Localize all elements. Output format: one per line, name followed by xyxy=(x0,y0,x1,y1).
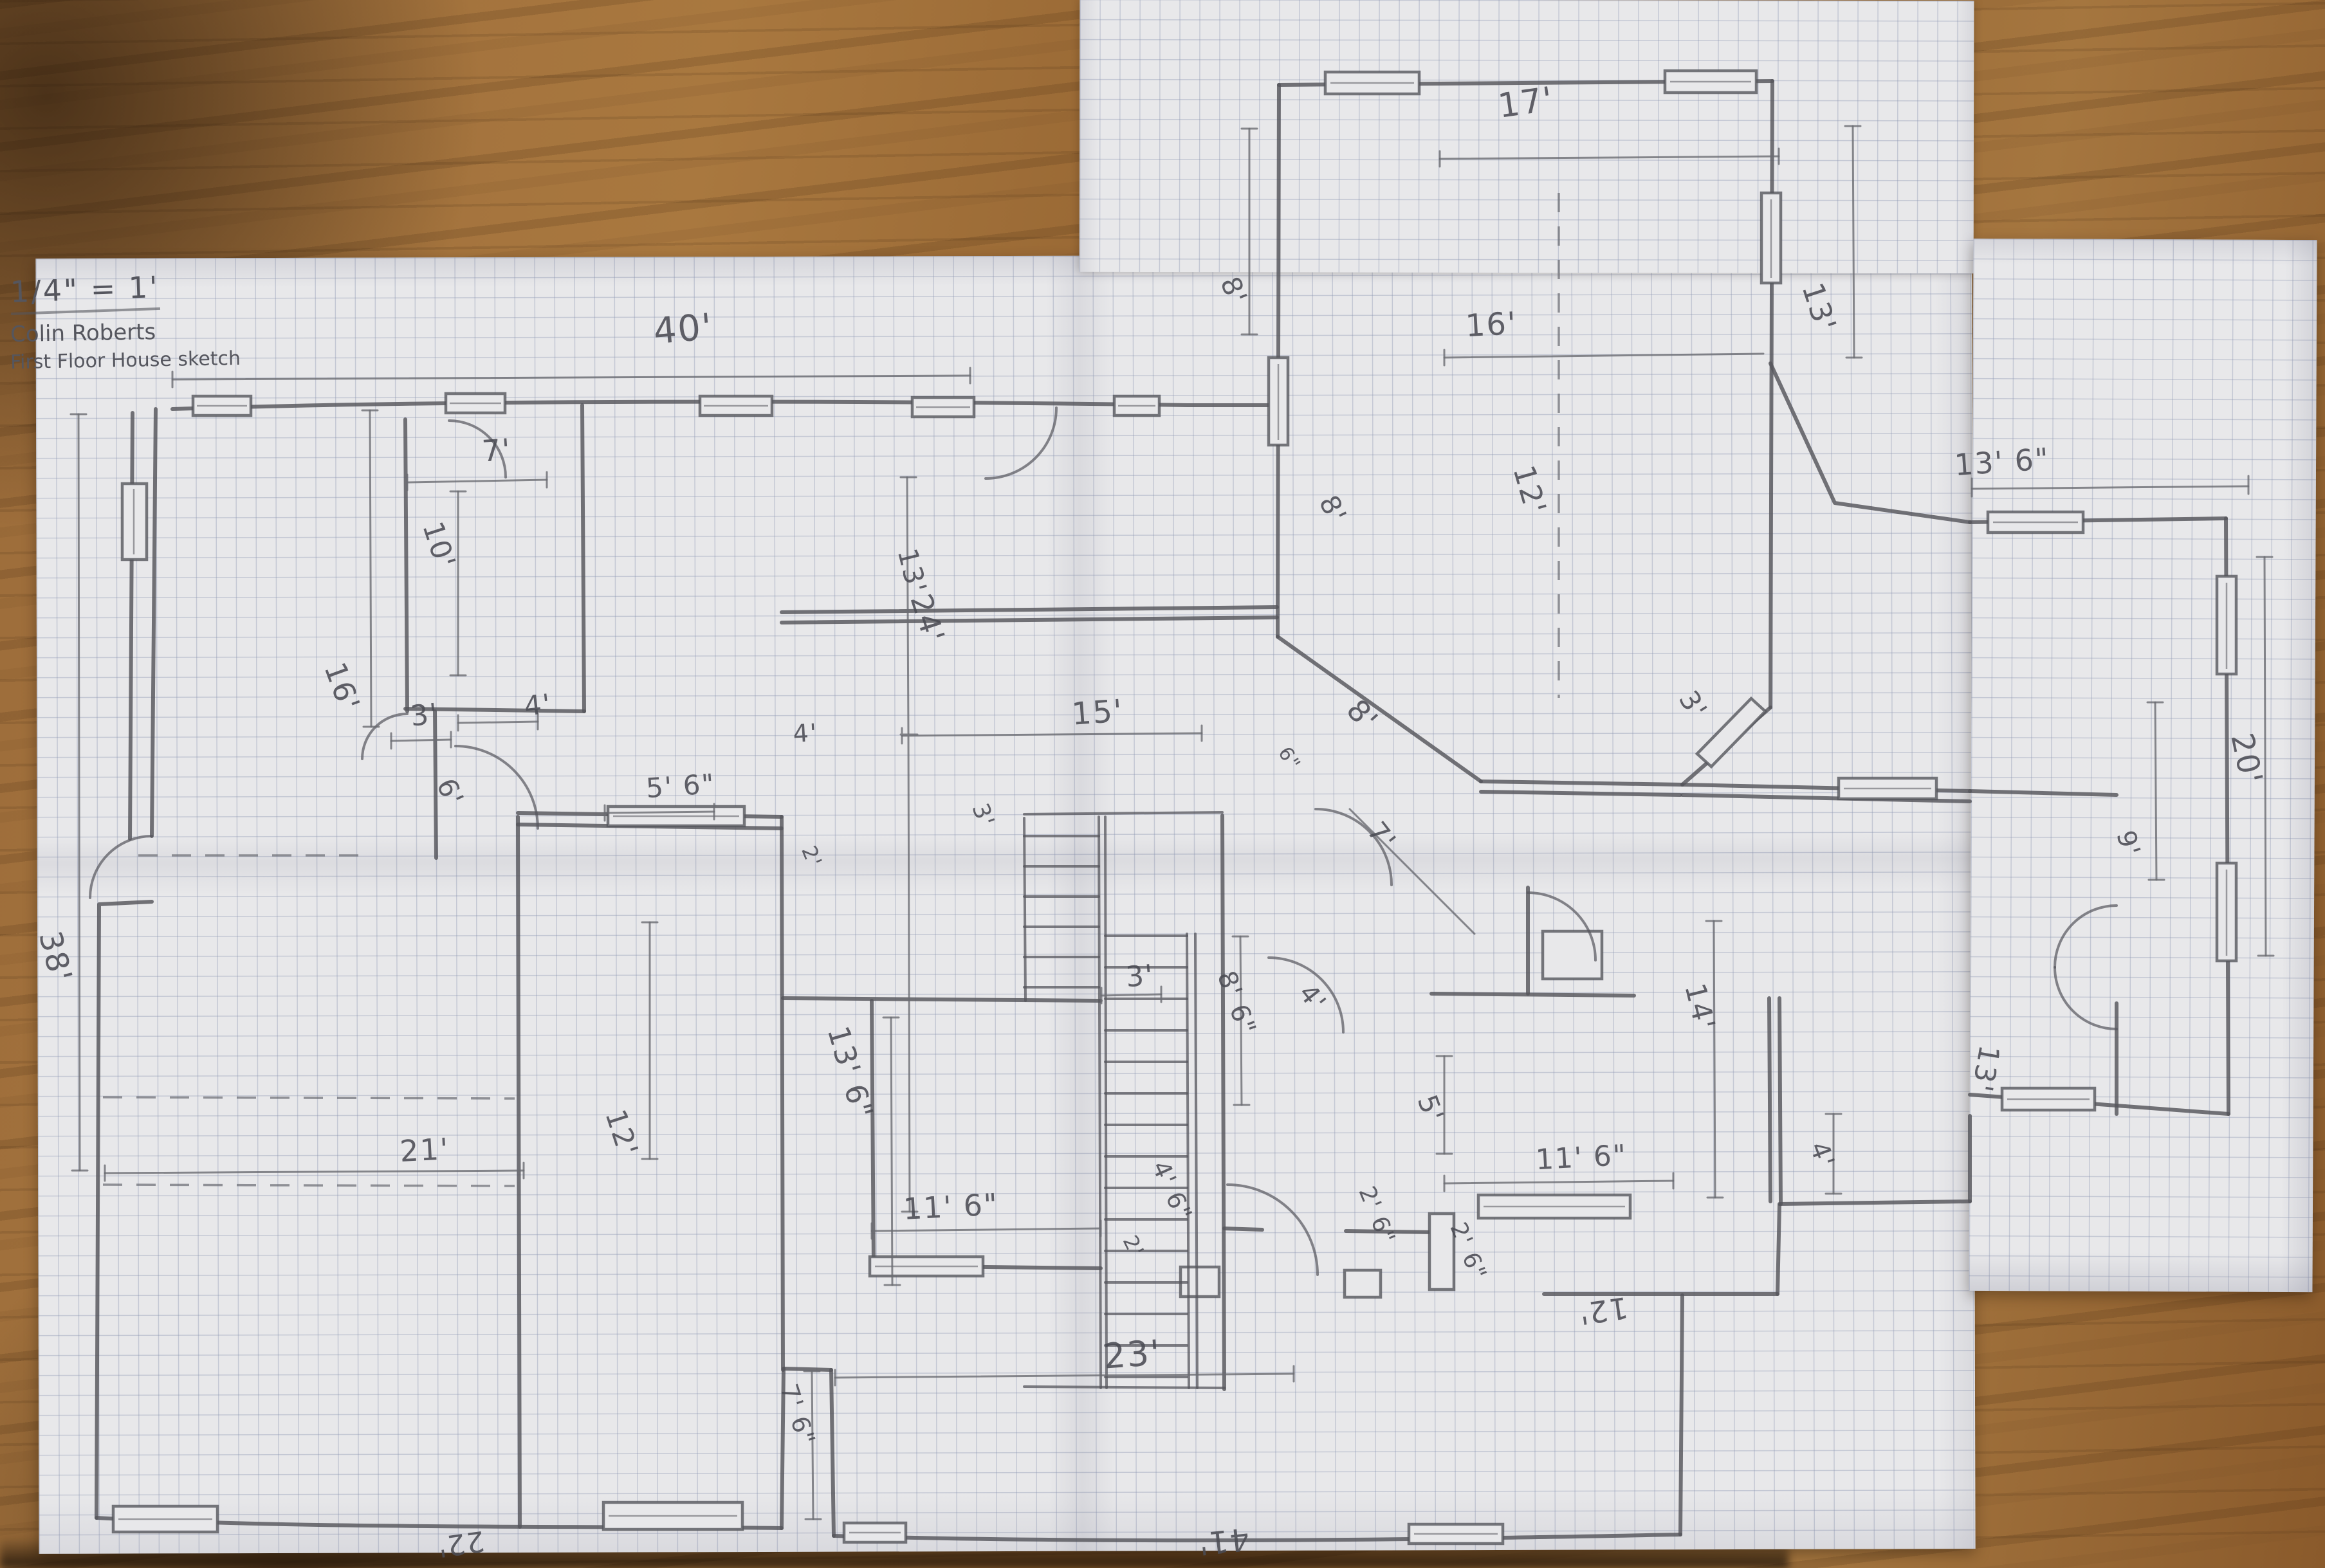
diagonal-door-slab xyxy=(1697,698,1765,767)
photo-floor-plan-sketch: 1/4" = 1' Colin Roberts First Floor Hous… xyxy=(0,0,2325,1568)
scale-note: 1/4" = 1' xyxy=(10,269,160,315)
title-block: 1/4" = 1' Colin Roberts First Floor Hous… xyxy=(10,271,241,373)
door-swing-arcs xyxy=(90,408,2117,1275)
author-name: Colin Roberts xyxy=(10,316,241,348)
floor-plan-drawing xyxy=(0,0,2325,1568)
wall-lines xyxy=(96,81,2229,1540)
sketch-title: First Floor House sketch xyxy=(10,347,241,375)
staircase xyxy=(1024,812,1224,1388)
dimension-lines xyxy=(71,126,2274,1519)
window-symbols xyxy=(113,71,2236,1544)
dashed-guide-lines xyxy=(103,193,1559,1186)
